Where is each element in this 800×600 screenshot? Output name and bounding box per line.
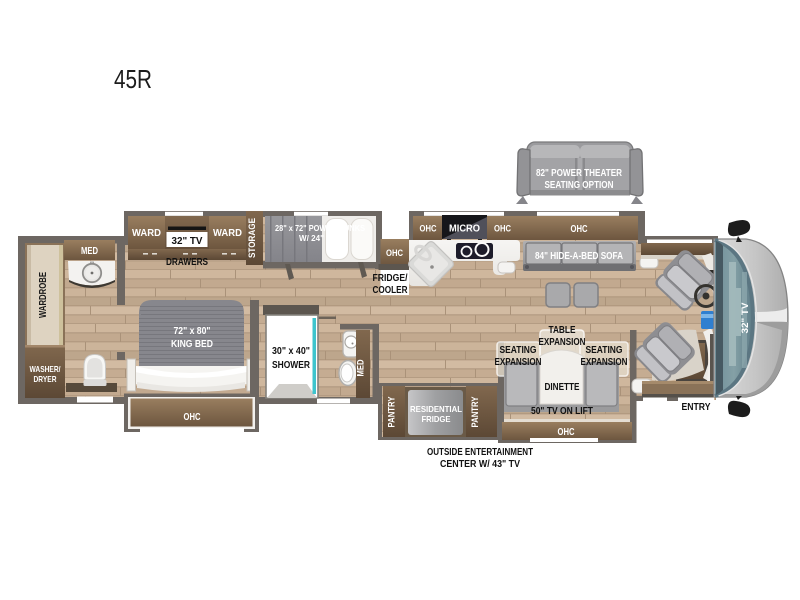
svg-text:SEATING OPTION: SEATING OPTION <box>545 180 614 191</box>
svg-text:ENTRY: ENTRY <box>682 401 711 413</box>
svg-text:OHC: OHC <box>558 427 575 438</box>
svg-text:SHOWER: SHOWER <box>272 359 310 371</box>
svg-text:WARDROBE: WARDROBE <box>37 272 49 318</box>
svg-text:50" TV ON LIFT: 50" TV ON LIFT <box>531 405 593 417</box>
svg-text:MED: MED <box>81 246 98 257</box>
svg-text:PANTRY: PANTRY <box>387 397 397 428</box>
svg-text:EXPANSION: EXPANSION <box>581 356 628 368</box>
svg-text:TABLE: TABLE <box>549 324 576 336</box>
svg-text:32" TV: 32" TV <box>172 235 203 247</box>
svg-text:WARD: WARD <box>213 228 242 239</box>
svg-text:PANTRY: PANTRY <box>470 397 480 428</box>
svg-text:82" POWER THEATER: 82" POWER THEATER <box>536 168 623 179</box>
svg-text:OHC: OHC <box>420 224 437 235</box>
svg-text:EXPANSION: EXPANSION <box>539 336 586 348</box>
svg-text:STORAGE: STORAGE <box>247 218 258 258</box>
svg-text:30" x 40": 30" x 40" <box>272 345 310 357</box>
svg-text:FRIDGE/: FRIDGE/ <box>373 272 408 284</box>
svg-text:OHC: OHC <box>184 412 201 423</box>
svg-text:MED: MED <box>356 359 367 376</box>
svg-text:OUTSIDE ENTERTAINMENT: OUTSIDE ENTERTAINMENT <box>427 446 533 458</box>
svg-text:COOLER: COOLER <box>373 284 408 296</box>
svg-text:72" x 80": 72" x 80" <box>174 326 211 337</box>
svg-text:EXPANSION: EXPANSION <box>495 356 542 368</box>
svg-text:28" x 72" POWER BUNKS: 28" x 72" POWER BUNKS <box>275 223 365 233</box>
svg-text:OHC: OHC <box>494 224 511 235</box>
svg-text:WARD: WARD <box>132 228 161 239</box>
svg-text:SEATING: SEATING <box>586 344 623 356</box>
svg-text:WASHER/: WASHER/ <box>30 364 61 374</box>
svg-text:DRYER: DRYER <box>34 374 57 384</box>
svg-text:SEATING: SEATING <box>500 344 537 356</box>
svg-text:DRAWERS: DRAWERS <box>166 256 208 268</box>
svg-text:32" TV: 32" TV <box>740 302 751 334</box>
svg-text:FRIDGE: FRIDGE <box>422 414 451 424</box>
svg-text:OHC: OHC <box>386 248 403 258</box>
svg-text:OHC: OHC <box>571 224 588 235</box>
svg-text:RESIDENTIAL: RESIDENTIAL <box>410 404 462 414</box>
svg-text:DINETTE: DINETTE <box>545 381 580 393</box>
svg-text:W/ 24" TVs: W/ 24" TVs <box>299 233 341 243</box>
svg-text:84" HIDE-A-BED SOFA: 84" HIDE-A-BED SOFA <box>535 250 623 262</box>
svg-text:MICRO: MICRO <box>449 223 480 235</box>
svg-text:45R: 45R <box>114 64 152 94</box>
svg-text:CENTER W/ 43" TV: CENTER W/ 43" TV <box>440 458 520 470</box>
svg-text:KING BED: KING BED <box>171 339 213 350</box>
